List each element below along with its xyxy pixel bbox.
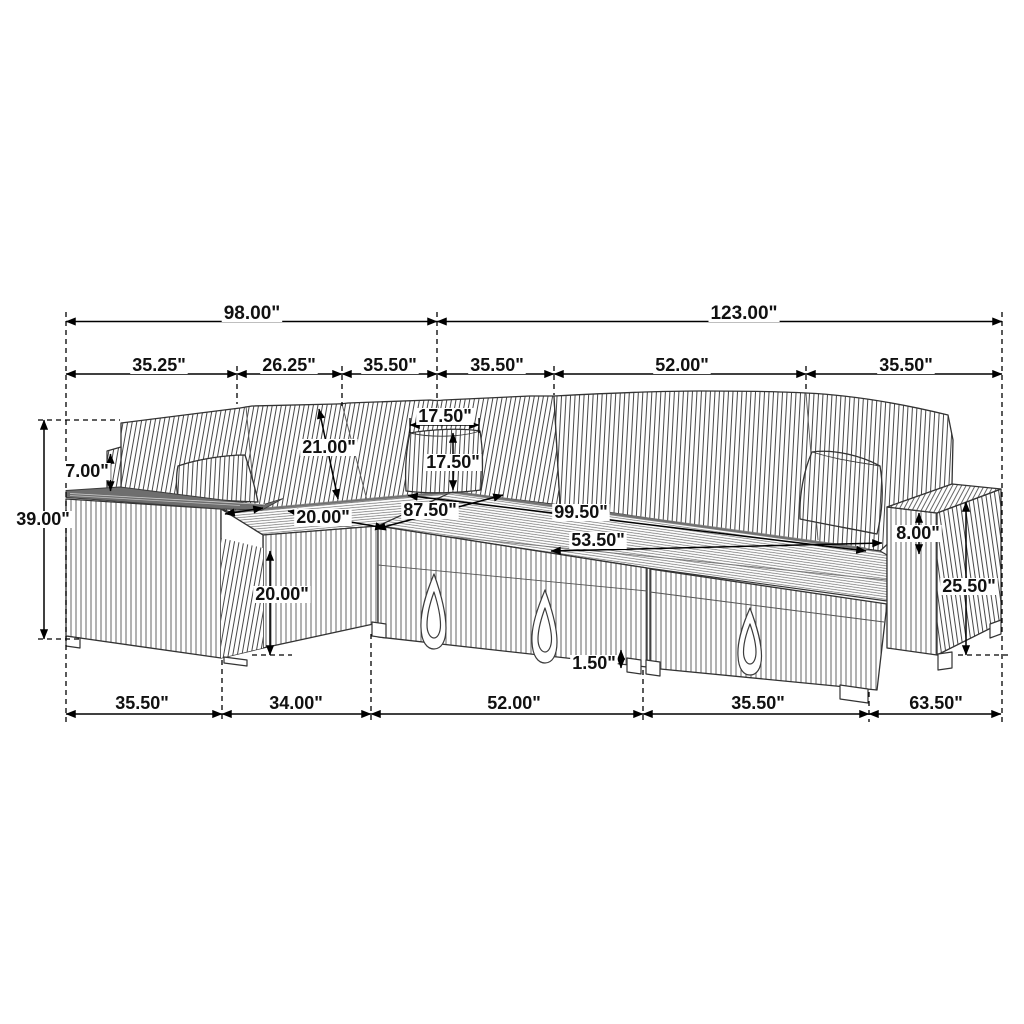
- svg-text:8.00": 8.00": [896, 523, 940, 543]
- svg-text:1.50": 1.50": [572, 653, 616, 673]
- svg-text:63.50": 63.50": [909, 693, 963, 713]
- svg-text:25.50": 25.50": [942, 576, 996, 596]
- svg-text:26.25": 26.25": [262, 355, 316, 375]
- svg-text:35.50": 35.50": [115, 693, 169, 713]
- svg-text:35.50": 35.50": [363, 355, 417, 375]
- svg-text:35.50": 35.50": [879, 355, 933, 375]
- svg-text:99.50": 99.50": [554, 502, 608, 522]
- svg-text:52.00": 52.00": [655, 355, 709, 375]
- svg-text:123.00": 123.00": [710, 303, 777, 324]
- svg-text:17.50": 17.50": [426, 452, 480, 472]
- svg-text:87.50": 87.50": [403, 500, 457, 520]
- svg-text:20.00": 20.00": [255, 584, 309, 604]
- svg-text:34.00": 34.00": [269, 693, 323, 713]
- svg-text:17.50": 17.50": [418, 406, 472, 426]
- svg-text:20.00": 20.00": [296, 507, 350, 527]
- svg-text:52.00": 52.00": [487, 693, 541, 713]
- svg-text:35.50": 35.50": [470, 355, 524, 375]
- svg-text:53.50": 53.50": [571, 530, 625, 550]
- svg-text:98.00": 98.00": [224, 303, 281, 324]
- svg-text:39.00": 39.00": [16, 509, 70, 529]
- svg-text:35.50": 35.50": [731, 693, 785, 713]
- svg-text:35.25": 35.25": [132, 355, 186, 375]
- svg-text:21.00": 21.00": [302, 437, 356, 457]
- svg-text:7.00": 7.00": [65, 461, 109, 481]
